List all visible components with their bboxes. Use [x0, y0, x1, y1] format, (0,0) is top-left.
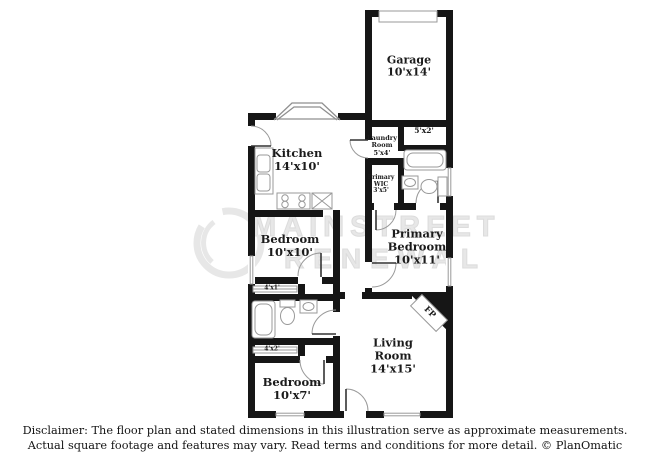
room-label-laundry: Laundry Room 5'x4'	[367, 135, 397, 157]
kitchen-counter	[255, 148, 273, 194]
room-label-bedroom3: Bedroom 10'x7'	[263, 376, 322, 402]
disclaimer-line2: Actual square footage and features may v…	[0, 439, 650, 452]
door-hall-bath	[312, 310, 336, 334]
floorplan-canvas	[0, 0, 650, 473]
garage-door	[379, 11, 437, 22]
bathtub-hall	[252, 301, 275, 338]
room-name-primary-wic: Primary WIC	[367, 175, 395, 188]
stove	[277, 193, 310, 209]
room-dims-kitchen: 14'x10'	[272, 160, 323, 173]
bathtub-primary	[404, 150, 446, 170]
window-bottom-bedroom3	[276, 411, 304, 418]
sink-hall	[300, 300, 317, 313]
room-name-primary-bedroom: Primary Bedroom	[386, 228, 448, 254]
room-label-kitchen: Kitchen 14'x10'	[272, 147, 323, 173]
bay-window	[274, 103, 340, 120]
room-dims-primary-bedroom: 10'x11'	[386, 253, 448, 266]
room-label-living-room: Living Room 14'x15'	[370, 337, 416, 376]
room-dims-bedroom2: 10'x10'	[261, 246, 320, 259]
room-name-bedroom3: Bedroom	[263, 376, 322, 389]
disclaimer-line1: Disclaimer: The floor plan and stated di…	[0, 424, 650, 437]
toilet-primary	[421, 177, 447, 196]
room-dims-nook: 5'x2'	[414, 127, 434, 135]
room-name-kitchen: Kitchen	[272, 147, 323, 160]
window-left-bedroom2	[248, 256, 255, 284]
sink-primary	[402, 176, 418, 189]
room-label-garage: Garage 10'x14'	[387, 55, 431, 80]
closet1-dims: 4'x1'	[264, 286, 280, 293]
room-name-laundry: Laundry Room	[367, 135, 397, 150]
floorplan-page: MAINSTREET RENEWAL	[0, 0, 650, 473]
room-dims-living-room: 14'x15'	[370, 362, 416, 375]
door-primary-bedroom	[372, 263, 396, 287]
door-laundry	[350, 140, 368, 158]
window-bottom-living	[384, 411, 420, 418]
room-label-nook: 5'x2'	[414, 127, 434, 135]
dishwasher	[312, 193, 332, 209]
closet2-label: 4'x2'	[264, 347, 280, 354]
room-dims-primary-wic: 3'x5'	[367, 188, 395, 195]
room-dims-laundry: 5'x4'	[367, 150, 397, 157]
door-side-kitchen	[251, 126, 271, 146]
toilet-hall	[280, 300, 295, 325]
door-entry	[346, 389, 368, 411]
room-dims-garage: 10'x14'	[387, 67, 431, 79]
room-label-primary-bedroom: Primary Bedroom 10'x11'	[386, 228, 448, 267]
closet2-dims: 4'x2'	[264, 347, 280, 354]
closet1-label: 4'x1'	[264, 286, 280, 293]
room-name-bedroom2: Bedroom	[261, 233, 320, 246]
room-label-primary-wic: Primary WIC 3'x5'	[367, 175, 395, 195]
room-label-bedroom2: Bedroom 10'x10'	[261, 233, 320, 259]
room-name-living-room: Living Room	[371, 337, 415, 363]
room-dims-bedroom3: 10'x7'	[263, 389, 322, 402]
